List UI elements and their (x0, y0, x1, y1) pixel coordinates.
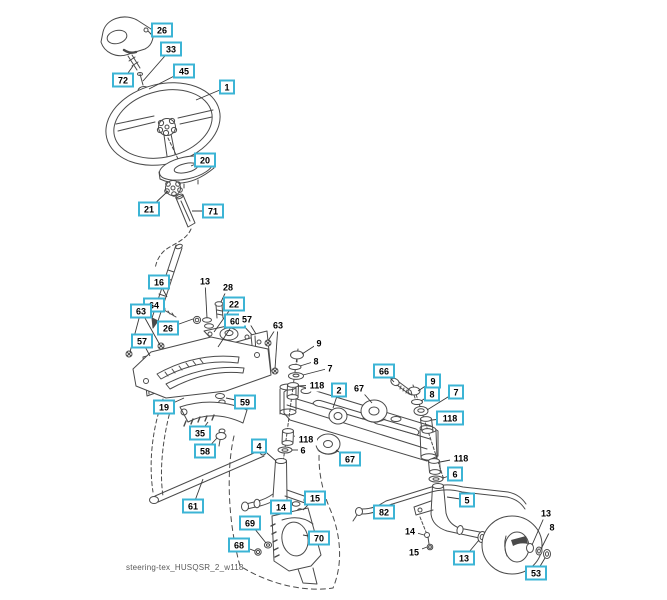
callout-45-boxed: 45 (174, 65, 194, 78)
callout-61-boxed: 61 (183, 500, 203, 513)
svg-text:7: 7 (453, 388, 458, 398)
callout-59-boxed: 59 (235, 396, 255, 409)
parts-diagram: 2633457212021711613286422632660576357987… (0, 0, 667, 600)
svg-text:4: 4 (256, 442, 261, 452)
callout-70-boxed: 70 (309, 532, 329, 545)
svg-text:16: 16 (154, 278, 164, 288)
callout-7-plain: 7 (325, 362, 335, 375)
callout-69-boxed: 69 (240, 517, 260, 530)
callout-63-boxed: 63 (131, 305, 151, 318)
svg-text:2: 2 (336, 386, 341, 396)
callout-82-boxed: 82 (374, 506, 394, 519)
callout-15-plain: 15 (406, 546, 422, 559)
callout-9-plain: 9 (314, 337, 324, 350)
callout-14-plain: 14 (402, 525, 418, 538)
svg-text:22: 22 (229, 300, 239, 310)
callout-1-boxed: 1 (220, 81, 234, 94)
callout-118-boxed: 118 (437, 412, 463, 425)
svg-text:63: 63 (136, 307, 146, 317)
callout-13-plain: 13 (538, 507, 554, 520)
svg-text:69: 69 (245, 519, 255, 529)
callout-67-plain: 67 (351, 382, 367, 395)
svg-text:59: 59 (240, 398, 250, 408)
callout-7-boxed: 7 (449, 386, 463, 399)
svg-text:15: 15 (409, 548, 419, 558)
svg-text:71: 71 (208, 207, 218, 217)
svg-text:118: 118 (299, 435, 314, 445)
svg-text:82: 82 (379, 508, 389, 518)
callout-13-plain: 13 (197, 275, 213, 288)
callout-13-boxed: 13 (454, 552, 474, 565)
svg-text:67: 67 (354, 384, 364, 394)
callout-8-plain: 8 (311, 355, 321, 368)
svg-text:70: 70 (314, 534, 324, 544)
callout-14-boxed: 14 (271, 501, 291, 514)
svg-text:9: 9 (430, 377, 435, 387)
diagram-footer-caption: steering-tex_HUSQSR_2_w118 (126, 563, 244, 572)
callout-71-boxed: 71 (203, 205, 223, 218)
svg-text:14: 14 (405, 527, 415, 537)
callout-53-boxed: 53 (526, 567, 546, 580)
callout-9-boxed: 9 (426, 375, 440, 388)
callout-6-boxed: 6 (448, 468, 462, 481)
callout-57-boxed: 57 (132, 335, 152, 348)
svg-text:60: 60 (230, 317, 240, 327)
svg-text:26: 26 (157, 26, 167, 36)
svg-text:13: 13 (459, 554, 469, 564)
callout-33-boxed: 33 (161, 43, 181, 56)
callout-35-boxed: 35 (190, 427, 210, 440)
callout-4-boxed: 4 (252, 440, 266, 453)
svg-text:1: 1 (224, 83, 229, 93)
svg-text:6: 6 (300, 446, 305, 456)
svg-text:118: 118 (443, 414, 458, 424)
callout-15-boxed: 15 (305, 492, 325, 505)
svg-text:118: 118 (454, 454, 469, 464)
callout-20-boxed: 20 (195, 154, 215, 167)
callout-5-boxed: 5 (460, 494, 474, 507)
svg-text:67: 67 (345, 455, 355, 465)
callout-118-plain: 118 (306, 379, 328, 392)
svg-text:33: 33 (166, 45, 176, 55)
callout-6-plain: 6 (298, 444, 308, 457)
svg-text:68: 68 (234, 541, 244, 551)
callout-57-plain: 57 (239, 313, 255, 326)
svg-text:7: 7 (327, 364, 332, 374)
svg-text:20: 20 (200, 156, 210, 166)
svg-text:53: 53 (531, 569, 541, 579)
svg-text:61: 61 (188, 502, 198, 512)
leader-line-63 (275, 325, 278, 369)
svg-text:8: 8 (429, 390, 434, 400)
svg-text:45: 45 (179, 67, 189, 77)
callout-22-boxed: 22 (224, 298, 244, 311)
svg-text:13: 13 (541, 509, 551, 519)
svg-text:57: 57 (242, 315, 252, 325)
callout-8-plain: 8 (547, 521, 557, 534)
callout-58-boxed: 58 (195, 445, 215, 458)
svg-text:5: 5 (464, 496, 469, 506)
callout-16-boxed: 16 (149, 276, 169, 289)
svg-text:9: 9 (316, 339, 321, 349)
svg-text:8: 8 (313, 357, 318, 367)
svg-text:63: 63 (273, 321, 283, 331)
callout-21-boxed: 21 (139, 203, 159, 216)
callout-66-boxed: 66 (374, 365, 394, 378)
svg-text:14: 14 (276, 503, 286, 513)
callout-68-boxed: 68 (229, 539, 249, 552)
svg-text:13: 13 (200, 277, 210, 287)
callout-2-boxed: 2 (332, 384, 346, 397)
svg-text:57: 57 (137, 337, 147, 347)
svg-text:8: 8 (549, 523, 554, 533)
callout-28-plain: 28 (220, 281, 236, 294)
callout-19-boxed: 19 (154, 401, 174, 414)
svg-text:6: 6 (452, 470, 457, 480)
callout-26-boxed: 26 (158, 322, 178, 335)
svg-text:21: 21 (144, 205, 154, 215)
callout-72-boxed: 72 (113, 74, 133, 87)
diagram-canvas: 2633457212021711613286422632660576357987… (0, 0, 667, 600)
callout-8-boxed: 8 (425, 388, 439, 401)
svg-text:35: 35 (195, 429, 205, 439)
svg-text:66: 66 (379, 367, 389, 377)
svg-text:15: 15 (310, 494, 320, 504)
svg-text:28: 28 (223, 283, 233, 293)
callout-63-plain: 63 (270, 319, 286, 332)
callout-26-boxed: 26 (152, 24, 172, 37)
svg-text:72: 72 (118, 76, 128, 86)
callout-67-boxed: 67 (340, 453, 360, 466)
svg-text:19: 19 (159, 403, 169, 413)
svg-text:118: 118 (310, 381, 325, 391)
svg-text:26: 26 (163, 324, 173, 334)
callout-118-plain: 118 (450, 452, 472, 465)
svg-text:58: 58 (200, 447, 210, 457)
bellcrank-drawing (255, 508, 321, 584)
